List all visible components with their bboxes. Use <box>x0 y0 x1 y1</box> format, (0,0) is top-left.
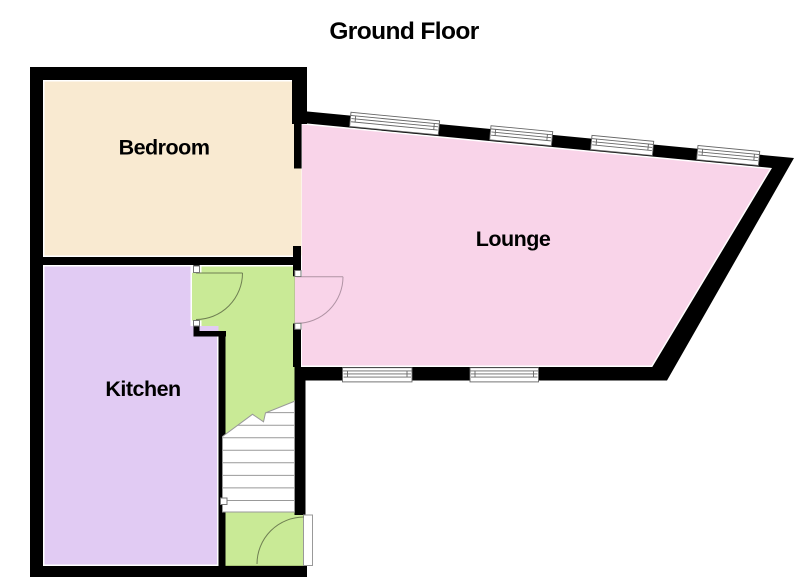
svg-text:Kitchen: Kitchen <box>105 377 180 401</box>
svg-text:Bedroom: Bedroom <box>119 136 210 160</box>
svg-text:Ground Floor: Ground Floor <box>329 18 479 45</box>
svg-text:Lounge: Lounge <box>476 227 551 251</box>
